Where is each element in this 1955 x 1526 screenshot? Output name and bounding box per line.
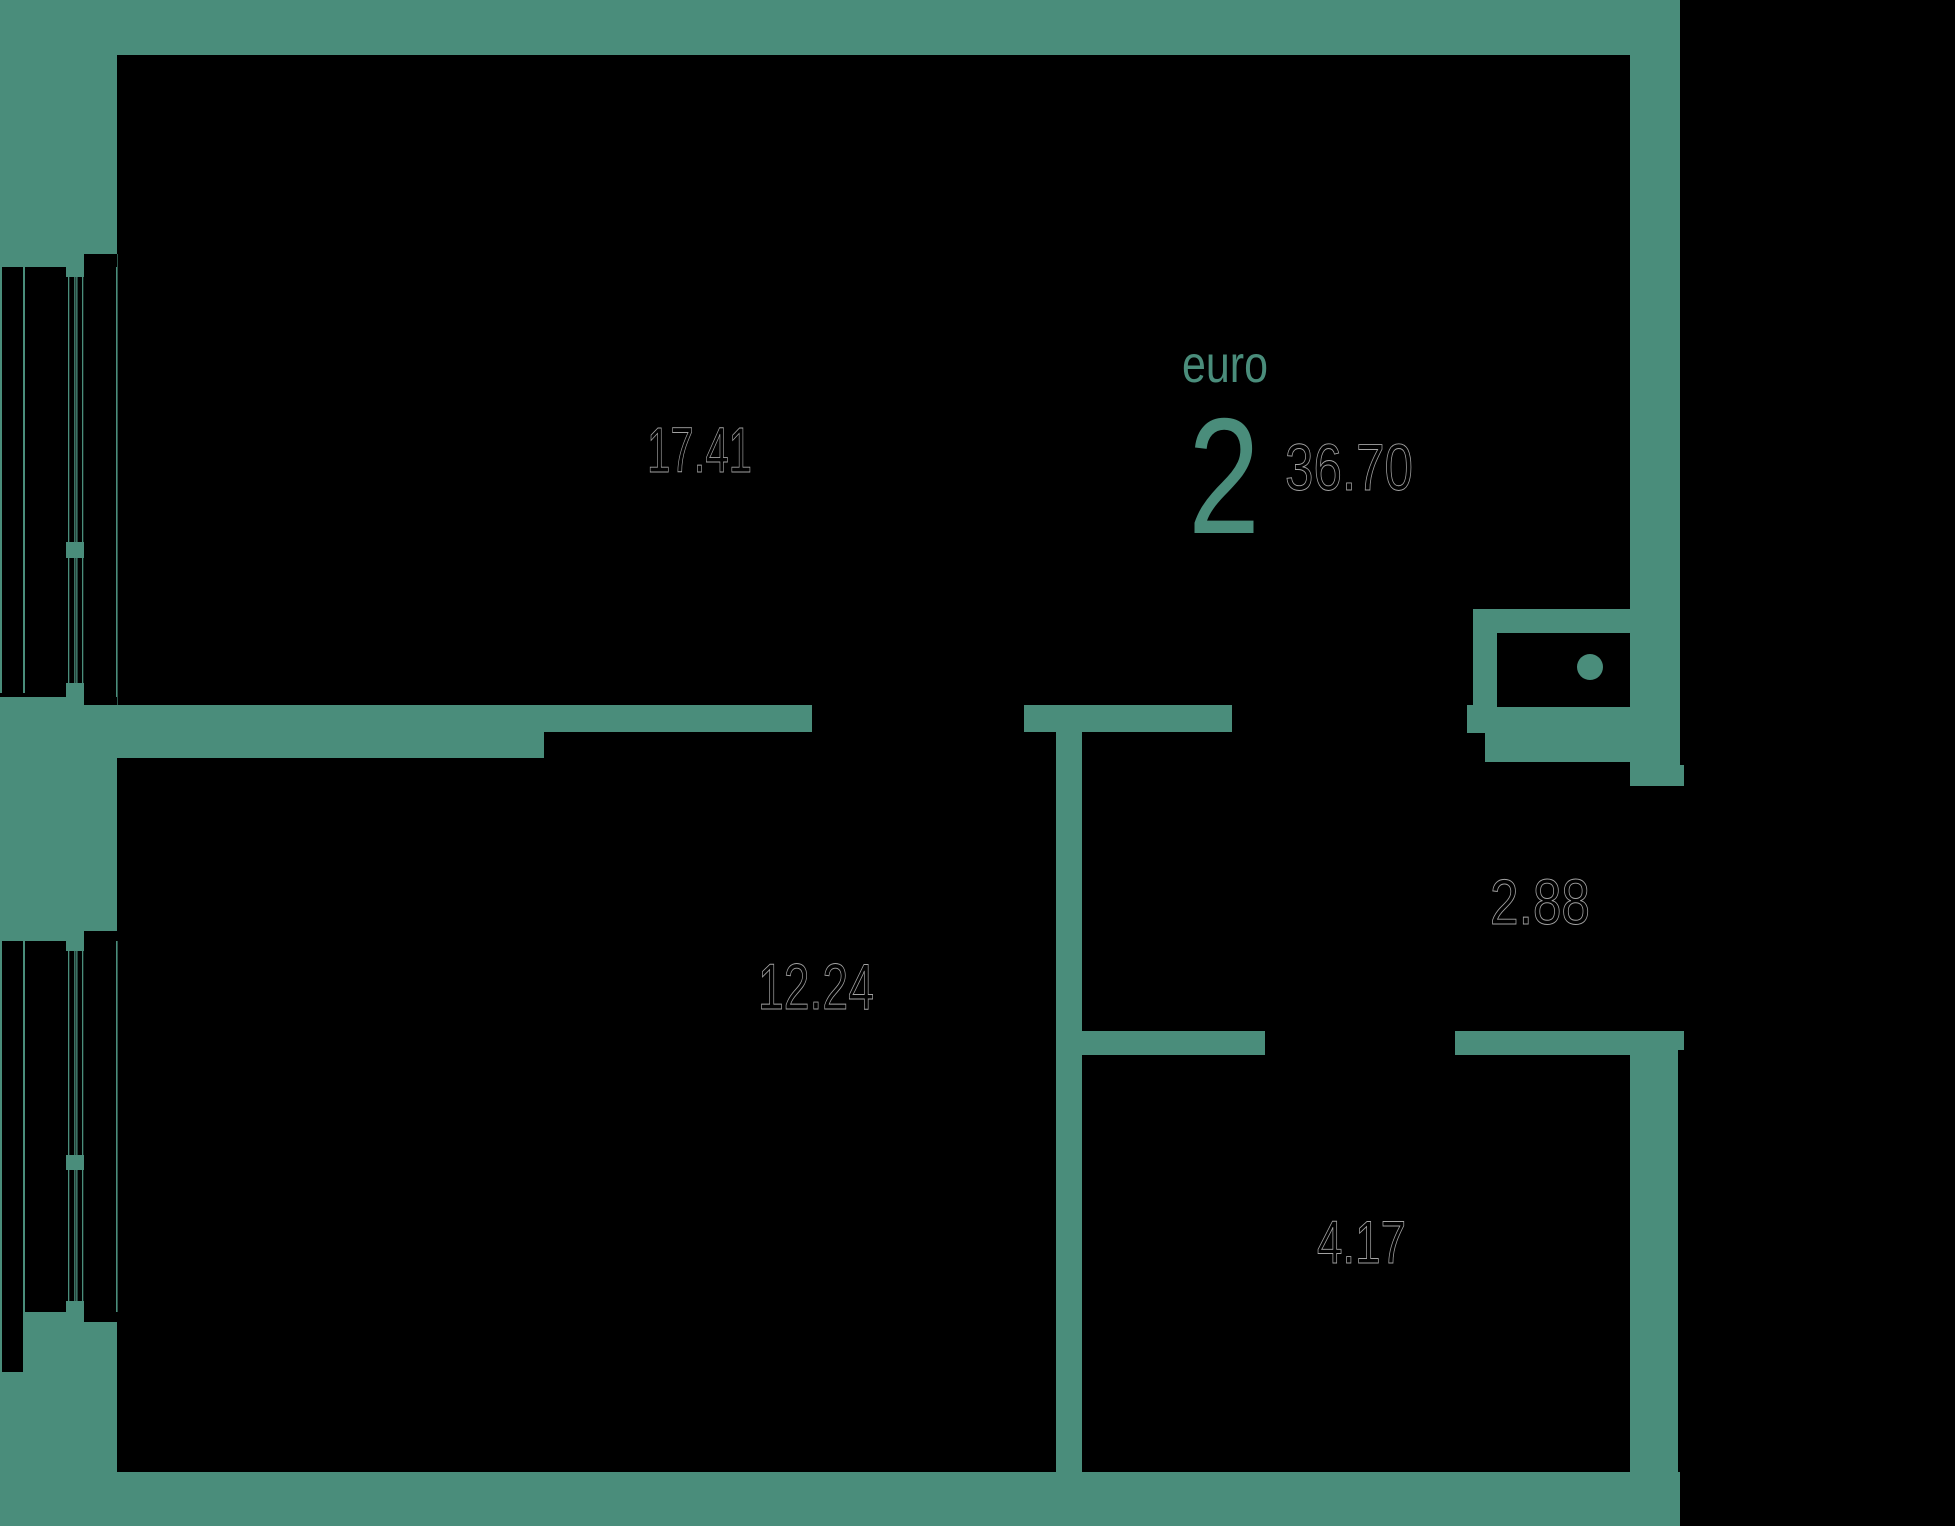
svg-text:2.88: 2.88 [1490, 866, 1590, 938]
svg-text:4.17: 4.17 [1317, 1209, 1406, 1276]
svg-text:12.24: 12.24 [758, 950, 874, 1023]
svg-text:36.70: 36.70 [1285, 430, 1413, 504]
svg-text:17.41: 17.41 [647, 414, 752, 486]
svg-text:2: 2 [1188, 384, 1260, 568]
